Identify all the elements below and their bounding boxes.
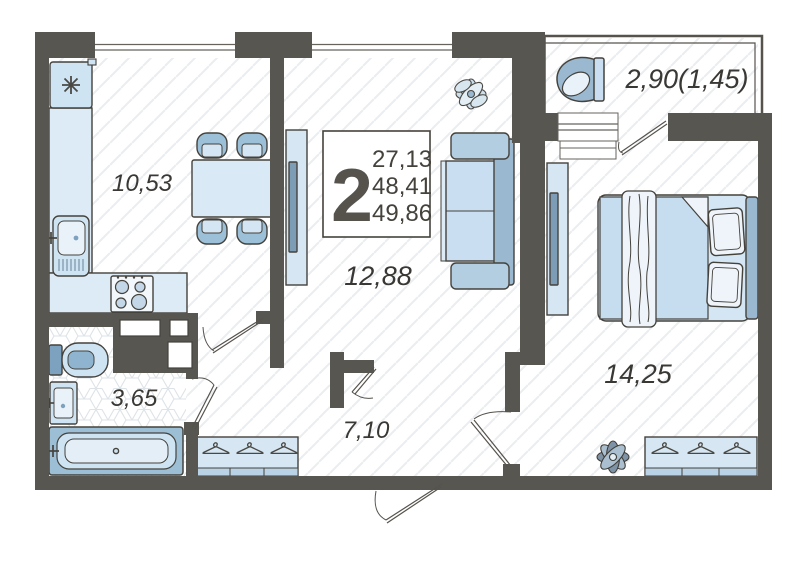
wall-living-hall [344, 360, 374, 373]
chair [237, 219, 267, 244]
kitchen-area-label: 10,53 [112, 170, 173, 197]
headboard [746, 197, 758, 319]
floorplan-drawing: 2 27,13 48,41 49,86 [0, 0, 805, 565]
legend-living-area: 27,13 [372, 146, 432, 173]
wall-jog [505, 352, 545, 365]
wall-right [758, 113, 772, 490]
wall-kitchen-living [270, 58, 284, 368]
bathroom-door-hinge [184, 422, 199, 435]
hallway [196, 437, 298, 476]
bed [598, 191, 758, 327]
duct-shaft [120, 320, 160, 336]
legend-box: 2 27,13 48,41 49,86 [323, 131, 432, 237]
wall-hall-bedroom [505, 365, 520, 412]
bathroom-area-label: 3,65 [111, 385, 158, 412]
wall-corner-column [512, 32, 545, 143]
fridge-handle [88, 59, 96, 65]
bedroom-door-hinge [503, 464, 520, 478]
wall-bathroom-east [186, 435, 198, 476]
sofa [441, 133, 514, 289]
wall-hall-stub [330, 352, 344, 408]
duct-shaft [168, 342, 192, 368]
tv-living [289, 162, 297, 252]
legend-total-area: 49,86 [372, 200, 432, 227]
chair [197, 219, 227, 244]
wall-living-bedroom [520, 143, 545, 365]
window-living [312, 32, 452, 58]
window-kitchen [95, 32, 235, 58]
plant-bedroom [597, 441, 629, 473]
chair [197, 133, 227, 158]
stove [111, 276, 153, 312]
floorplan-page: 2 27,13 48,41 49,86 [0, 0, 805, 565]
balcony [557, 57, 604, 101]
duct-shaft [170, 320, 188, 336]
pillow [707, 262, 743, 308]
balcony-area-label: 2,90(1,45) [624, 64, 748, 94]
bathtub [47, 427, 183, 475]
wall-left [35, 32, 49, 490]
wall-bedroom-top-right [668, 113, 772, 141]
living-area-label: 12,88 [344, 261, 412, 291]
fridge-snowflake-icon [62, 76, 80, 94]
bedroom-area-label: 14,25 [604, 359, 673, 389]
legend-apartment-area: 48,41 [372, 173, 432, 200]
tv-bedroom [550, 193, 558, 285]
wall-bottom [35, 476, 772, 490]
drying-rack [59, 259, 83, 271]
bed-throw [622, 191, 656, 327]
wardrobe-hallway [196, 437, 298, 476]
pillow [708, 208, 745, 256]
balcony-step [560, 141, 616, 159]
wall-bedroom-top-left [545, 113, 558, 141]
toilet [49, 343, 108, 377]
balcony-armchair [557, 57, 604, 101]
legend-rooms-count: 2 [331, 153, 373, 237]
hallway-area-label: 7,10 [343, 417, 390, 444]
kitchen-door-hinge [256, 311, 270, 324]
dining-table [192, 160, 272, 217]
wall-kitchen-bathroom [35, 313, 125, 327]
window-bedroom [558, 113, 618, 159]
wardrobe-bedroom [645, 437, 757, 476]
chair [237, 133, 267, 158]
